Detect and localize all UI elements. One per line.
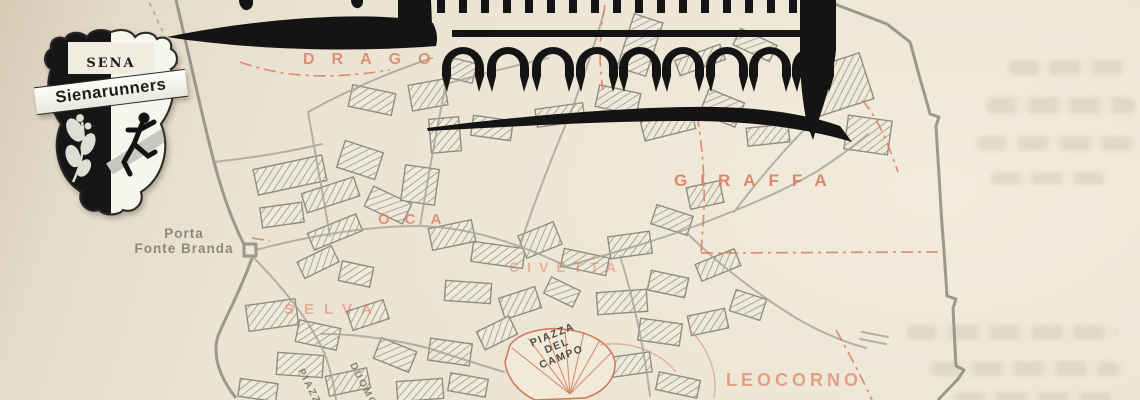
left-swoosh [167,16,437,49]
crenellation [437,0,797,13]
top-fragment [239,0,253,10]
crest-sena-text: SENA [42,56,180,71]
top-fragment [351,0,363,8]
sienarunners-crest: SENA Sienarunners [42,26,180,218]
beam [452,30,833,37]
bottom-swoosh [427,107,852,142]
arches [442,47,834,92]
siena-map-poster: DRAGO GIRAFFA OCA CIVETTA SELVA LEOCORNO… [0,0,1140,400]
